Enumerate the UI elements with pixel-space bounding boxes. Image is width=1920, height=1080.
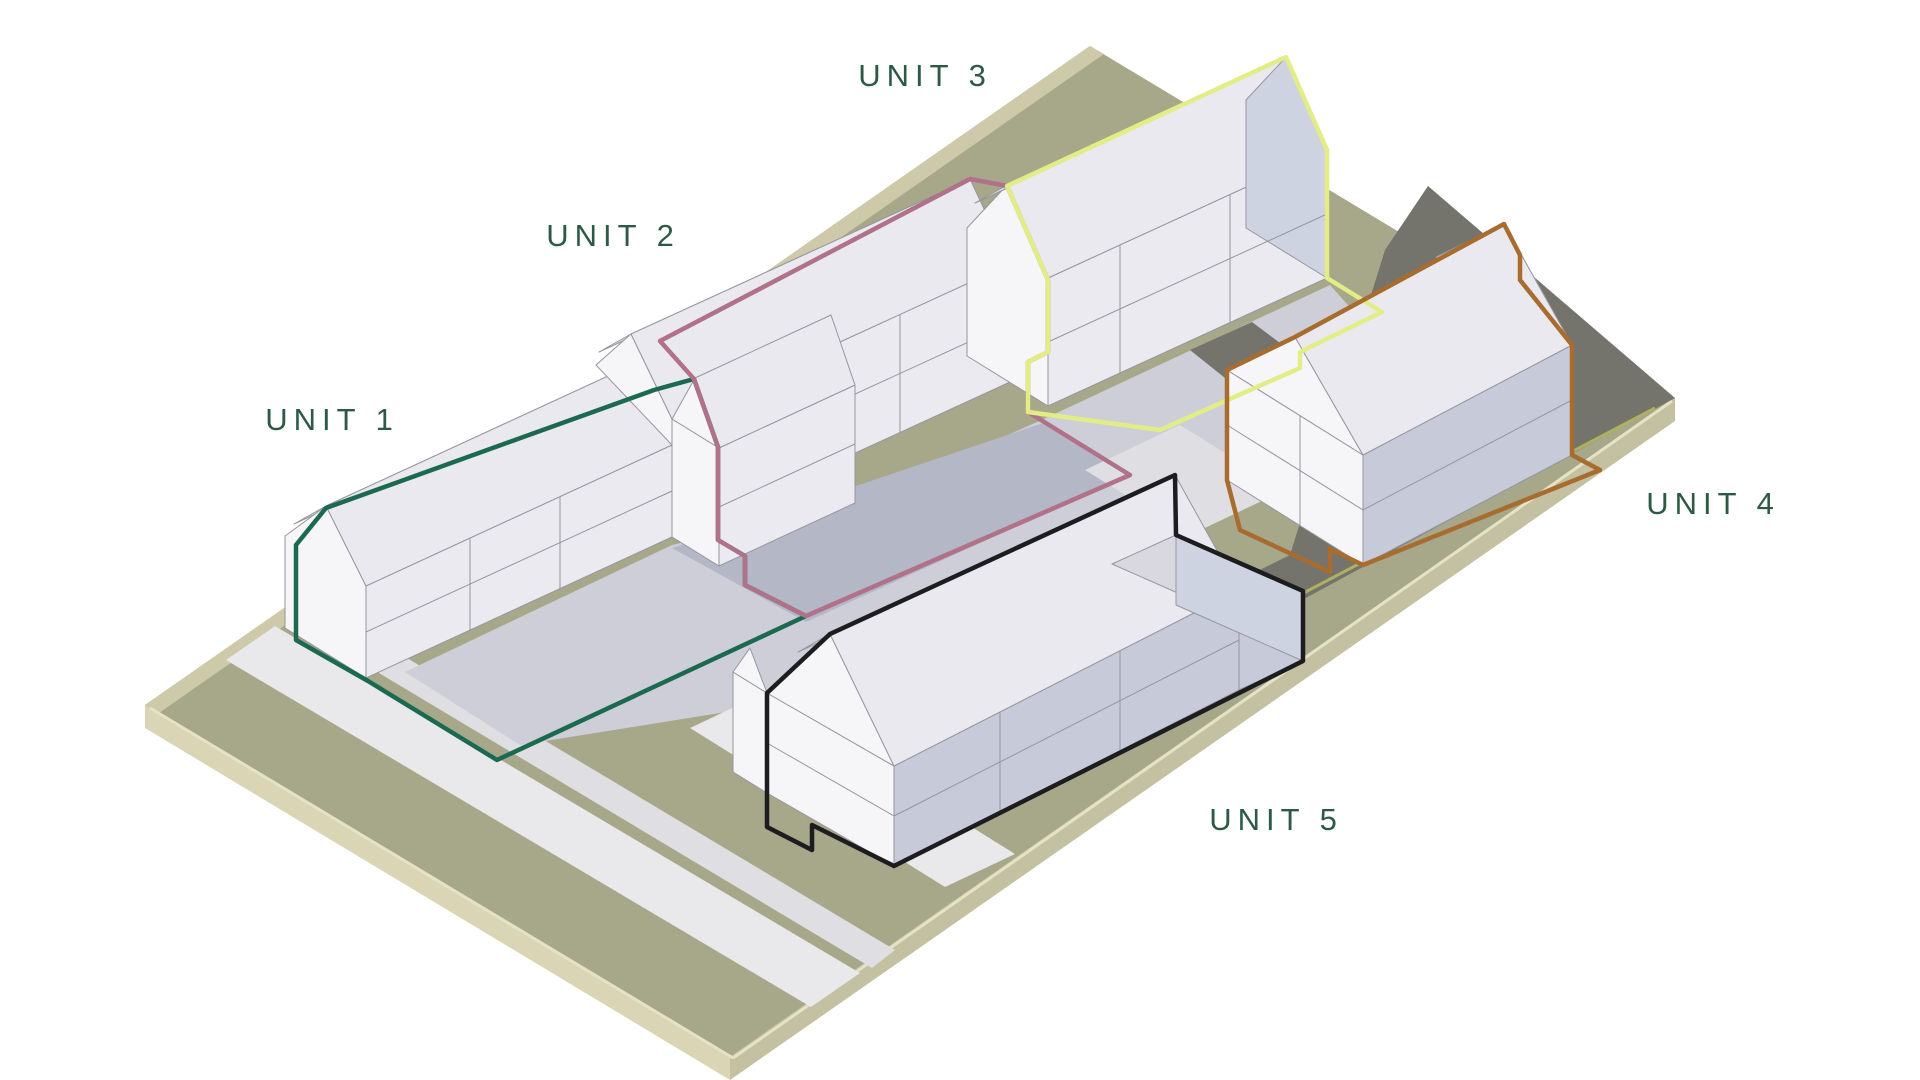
unit4-label: UNIT 4	[1646, 486, 1780, 521]
unit2-label: UNIT 2	[546, 218, 680, 253]
site-plan-diagram: UNIT 1 UNIT 2 UNIT 3 UNIT 4 UNIT 5	[0, 0, 1920, 1080]
unit5-label: UNIT 5	[1209, 802, 1343, 837]
unit3-label: UNIT 3	[858, 58, 992, 93]
unit1-label: UNIT 1	[265, 402, 399, 437]
